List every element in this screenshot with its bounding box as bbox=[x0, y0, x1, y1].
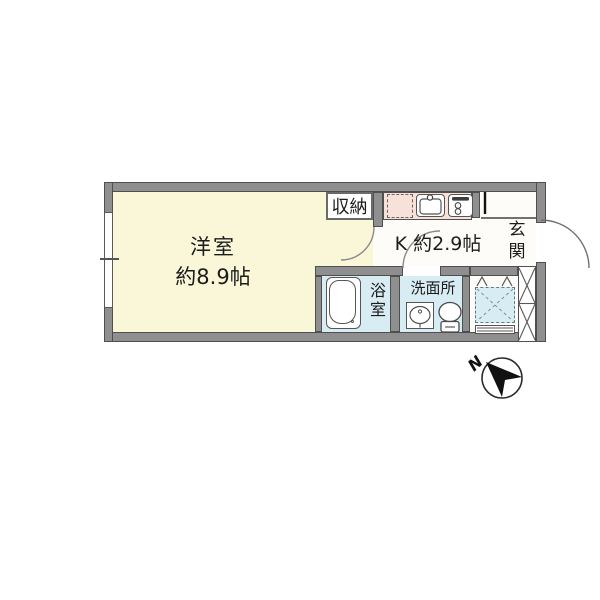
fridge-space bbox=[387, 194, 413, 218]
counter-end-wall bbox=[472, 192, 480, 218]
bath-left-wall bbox=[315, 276, 322, 332]
wall-left-lower bbox=[104, 307, 113, 342]
wall-left-upper bbox=[104, 182, 113, 213]
closet-label: 収納 bbox=[332, 193, 368, 219]
bathroom-char-2: 室 bbox=[368, 300, 388, 319]
bathroom-label: 浴 室 bbox=[368, 281, 388, 319]
stove-icon bbox=[448, 194, 473, 217]
washing-machine-space bbox=[475, 287, 515, 323]
wall-right-lower bbox=[536, 262, 546, 342]
bath-block-top-wall bbox=[315, 266, 403, 276]
north-arrow: N bbox=[464, 351, 522, 398]
washroom-top-wall bbox=[440, 266, 470, 276]
floorplan-canvas: 収納 bbox=[0, 0, 600, 600]
alcove-top-wall bbox=[470, 266, 518, 276]
bath-washroom-divider-wall bbox=[390, 276, 400, 332]
window-icon bbox=[104, 212, 113, 308]
north-label: N bbox=[464, 351, 487, 374]
washer-pan-louver bbox=[475, 325, 515, 334]
closet-box: 収納 bbox=[326, 192, 373, 220]
wall-top bbox=[104, 182, 546, 192]
living-kitchen-doorway bbox=[373, 227, 383, 266]
living-kitchen-divider-wall bbox=[373, 192, 383, 227]
entrance-label: 玄 関 bbox=[506, 219, 528, 263]
washbasin-icon bbox=[406, 302, 434, 329]
living-room-name: 洋室 bbox=[143, 231, 283, 261]
entrance-char-2: 関 bbox=[506, 241, 528, 263]
entrance-char-1: 玄 bbox=[506, 219, 528, 241]
entrance-door-arc bbox=[541, 220, 589, 268]
wall-right-upper bbox=[536, 182, 546, 223]
living-room-size: 約8.9帖 bbox=[143, 261, 283, 291]
kitchen-sink-icon bbox=[416, 194, 445, 217]
kitchen-label: K 約2.9帖 bbox=[386, 229, 490, 256]
pipe-shaft bbox=[518, 266, 536, 342]
washroom-label: 洗面所 bbox=[402, 277, 464, 298]
bathtub-icon bbox=[326, 277, 361, 329]
bathroom-char-1: 浴 bbox=[368, 281, 388, 300]
